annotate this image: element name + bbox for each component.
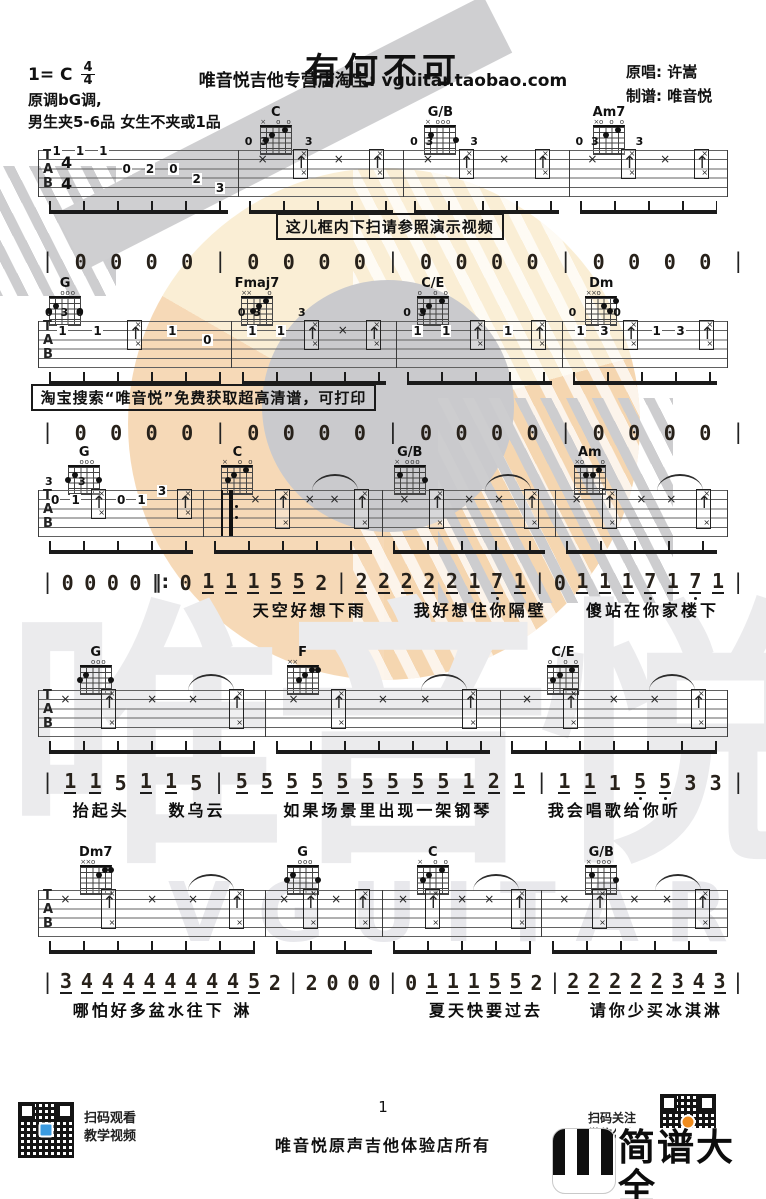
melody-barline: |	[735, 249, 742, 273]
melody-number: 7	[689, 570, 701, 594]
measure-row: ×↑××↑×↑×↑×↑××↑×↑××↑	[38, 890, 728, 937]
brand-logo: 简谱大全 jianpudq.com	[552, 1128, 766, 1199]
mute-cross: ×	[188, 693, 198, 705]
melody-number: 2	[423, 570, 435, 594]
melody-number: 0	[699, 251, 711, 273]
chord-dot	[589, 872, 595, 878]
strum-arrow-box: ↑	[127, 320, 142, 350]
melody-barline: |	[338, 570, 345, 594]
chord-dot	[263, 298, 269, 304]
melody-number: 1	[247, 570, 259, 594]
fret-note: 1	[51, 145, 61, 157]
strum-arrow-box: ↑	[470, 320, 485, 350]
strum-arrow-box: ↑	[354, 489, 369, 529]
melody-number: 5	[437, 770, 449, 794]
chord-dot	[83, 672, 89, 678]
melody-number: 5	[510, 970, 522, 994]
sheet-page: 唯音悦 VGUITAR 有何不可 1= C 4 4 唯音悦吉他专营店淘宝: vg…	[0, 0, 766, 1199]
shop-line: 唯音悦吉他专营店淘宝: vguitar.taobao.com	[110, 66, 656, 91]
chord-dot	[102, 867, 108, 873]
melody-number: 1	[622, 570, 634, 594]
melody-number: 2	[446, 570, 458, 594]
mute-cross: ×	[494, 493, 504, 505]
melody-number: 4	[143, 970, 155, 994]
measure: 0 013↑13↑	[563, 321, 728, 368]
chord-dot	[590, 472, 596, 478]
melody-number: 1	[468, 970, 480, 994]
mute-cross: ×	[305, 493, 315, 505]
strum-arrow-box: ↑	[331, 689, 346, 729]
chord-dot	[96, 872, 102, 878]
melody-barline: |	[735, 420, 742, 444]
melody-number: 5	[387, 770, 399, 794]
mute-cross: ×	[587, 153, 597, 165]
chord-C: C×oo	[215, 446, 259, 495]
melody-number: 3	[714, 970, 726, 994]
melody-number: 2	[269, 972, 281, 994]
melody-number: 1	[667, 570, 679, 594]
melody-number: 2	[378, 570, 390, 594]
fret-note: 3	[675, 325, 685, 337]
measure: 0 3 3×↑×↑	[570, 150, 728, 197]
mute-cross: ×	[572, 493, 582, 505]
mute-cross: ×	[338, 324, 348, 336]
chord-row: GoooFmaj7××oC/EoooDm××o	[0, 277, 766, 321]
lyric-text: 我会唱歌给你听	[548, 797, 681, 821]
lyric-text: 数乌云	[169, 797, 226, 821]
mute-cross: ×	[288, 693, 298, 705]
strum-arrow-box: ↑	[425, 889, 440, 929]
mute-cross: ×	[398, 893, 408, 905]
mute-cross: ×	[423, 153, 433, 165]
melody-number: 0	[420, 422, 432, 444]
strum-arrow-box: ↑	[459, 149, 474, 179]
fret-note: 1	[167, 325, 177, 337]
chord-dot	[596, 467, 602, 473]
melody-number: 0	[318, 422, 330, 444]
chord-dot	[583, 472, 589, 478]
fret-numbers: 0 3 3	[245, 135, 315, 148]
chord-dot	[284, 877, 290, 883]
system-4: GoooF××C/EoooTAB×↑××↑×↑××↑×↑××↑|115115|5…	[0, 646, 766, 821]
melody-number: 2	[630, 970, 642, 994]
strum-arrow-box: ↑	[602, 489, 617, 529]
melody-number: 1	[426, 970, 438, 994]
melody-number: 5	[293, 570, 305, 594]
chord-dot	[439, 298, 445, 304]
measure: ×↑××↑	[542, 890, 728, 937]
melody-number: 4	[693, 970, 705, 994]
melody-number: 5	[286, 770, 298, 794]
chord-C-E: C/Eooo	[541, 646, 585, 695]
melody-number: 0	[62, 572, 74, 594]
melody-number: 5	[489, 970, 501, 994]
melody-number: 1	[89, 770, 101, 794]
mute-cross: ×	[279, 893, 289, 905]
system-2: GoooFmaj7××oC/EoooDm××oTAB0 3 011↑100 3 …	[0, 277, 766, 444]
chord-dot	[225, 477, 231, 483]
melody-barline: |	[538, 770, 545, 794]
brand-text: 简谱大全 jianpudq.com	[616, 1128, 766, 1199]
mute-cross: ×	[378, 693, 388, 705]
melody-number: 0	[129, 572, 141, 594]
tab-staff: TAB0 3 011↑100 3 311↑×↑0 311↑1↑0 013↑13↑	[38, 321, 728, 368]
mute-cross: ×	[559, 893, 569, 905]
chord-dot	[613, 298, 619, 304]
lyrics-row: 哪怕好多盆水往下 淋夏天快要过去请你少买冰淇淋	[0, 997, 766, 1021]
melody-barline: |	[217, 249, 224, 273]
melody-number: 1	[558, 770, 570, 794]
mute-cross: ×	[329, 493, 339, 505]
melody-number: 1	[468, 570, 480, 594]
lyric-text: 抬起头	[73, 797, 130, 821]
strum-arrow-box: ↑	[275, 489, 290, 529]
melody-number: 0	[146, 422, 158, 444]
melody-number: 1	[513, 770, 525, 794]
strum-arrow-box: ↑	[535, 149, 550, 179]
fret-note: 0	[116, 494, 126, 506]
chord-dot	[290, 872, 296, 878]
mute-cross: ×	[662, 893, 672, 905]
chord-dot	[96, 477, 102, 483]
fret-numbers: 0 0	[569, 306, 623, 319]
melody-number: 0	[283, 422, 295, 444]
melody-number: 0	[181, 422, 193, 444]
melody-number: 0	[368, 972, 380, 994]
melody-number: 2	[651, 970, 663, 994]
strum-arrow-box: ↑	[366, 320, 381, 350]
melody-number: 0	[491, 251, 503, 273]
strum-arrow-box: ↑	[229, 689, 244, 729]
melody-number: 0	[146, 251, 158, 273]
fret-note: 0	[168, 163, 178, 175]
repeat-barline	[221, 490, 233, 536]
lyrics-row: 天空好想下雨我好想住你隔壁傻站在你家楼下	[0, 597, 766, 621]
melody-number: 2	[588, 970, 600, 994]
strum-arrow-box: ↑	[303, 889, 318, 929]
mute-cross: ×	[331, 893, 341, 905]
melody-number: 5	[270, 570, 282, 594]
measure: ×↑××↑	[39, 690, 266, 737]
melody-number: 0	[247, 251, 259, 273]
strum-arrow-box: ↑	[355, 889, 370, 929]
chord-dot	[309, 667, 315, 673]
melody-barline: |	[44, 249, 51, 273]
melody-number: 1	[609, 772, 621, 794]
strum-arrow-box: ↑	[293, 149, 308, 179]
melody-number: 1	[202, 570, 214, 594]
melody-number: 4	[164, 970, 176, 994]
fret-note: 1	[503, 325, 513, 337]
fret-note: 2	[145, 163, 155, 175]
melody-number: 0	[181, 251, 193, 273]
chord-dot	[108, 867, 114, 873]
original-singer: 原唱: 许嵩	[626, 60, 760, 84]
chord-dot	[422, 477, 428, 483]
fret-note: 1	[57, 325, 67, 337]
mute-cross: ×	[666, 493, 676, 505]
melody-number: 3	[684, 772, 696, 794]
melody-number: 5	[659, 770, 671, 794]
measure: ×↑××↑	[383, 490, 555, 537]
chord-dot	[439, 867, 445, 873]
chord-Dm7: Dm7××o	[74, 846, 118, 895]
mute-cross: ×	[258, 153, 268, 165]
qr-caption-follow-line1: 扫码关注	[588, 1110, 648, 1126]
fret-note: 1	[70, 494, 80, 506]
chord-dot	[615, 127, 621, 133]
brand-name: 简谱大全	[618, 1128, 766, 1199]
melody-number: 0	[347, 972, 359, 994]
melody-number: 0	[327, 972, 339, 994]
measure: 0 3 3×↑×↑	[239, 150, 404, 197]
measure: ×↑×↑	[266, 890, 383, 937]
tab-staff: TAB×↑××↑×↑××↑×↑××↑	[38, 690, 728, 737]
melody-barline: |	[389, 420, 396, 444]
melody-barline: |	[735, 570, 742, 594]
chord-dot	[231, 472, 237, 478]
melody-number: 2	[488, 770, 500, 794]
measure: 3 301↑013↑	[39, 490, 204, 537]
measure-row: 111020230 3 3×↑×↑0 3 3×↑×↑0 3 3×↑×↑	[38, 150, 728, 197]
melody-number: 5	[248, 970, 260, 994]
strum-arrow-box: ↑	[531, 320, 546, 350]
melody-number: 5	[634, 770, 646, 794]
callout-box: 淘宝搜索“唯音悦”免费获取超高清谱，可打印	[31, 384, 377, 411]
capo-note: 男生夹5-6品 女生不夹或1品	[28, 111, 221, 132]
melody-number: 2	[306, 972, 318, 994]
melody-number: 0	[491, 422, 503, 444]
melody-number: 0	[107, 572, 119, 594]
melody-number: 0	[405, 972, 417, 994]
melody-barline: |	[562, 420, 569, 444]
melody-number: 0	[699, 422, 711, 444]
measure-row: 0 3 011↑100 3 311↑×↑0 311↑1↑0 013↑13↑	[38, 321, 728, 368]
melody-number: 0	[554, 572, 566, 594]
time-signature-bottom: 4	[81, 75, 94, 87]
fret-note: 3	[599, 325, 609, 337]
melody-number: 0	[84, 572, 96, 594]
chord-dot	[420, 877, 426, 883]
lyric-text: 天空好想下雨	[253, 597, 367, 621]
tab-staff: TAB3 301↑013↑×↑××↑×↑××↑×↑××↑	[38, 490, 728, 537]
strum-arrow-box: ↑	[563, 689, 578, 729]
footer: 扫码观看 教学视频 1 唯音悦原声吉他体验店所有 扫码关注 微信公众号 简谱大全…	[0, 1088, 766, 1199]
melody-barline: |	[44, 570, 51, 594]
strum-arrow-box: ↑	[101, 689, 116, 729]
melody-number: 1	[225, 570, 237, 594]
melody-number: 1	[463, 770, 475, 794]
mute-cross: ×	[650, 693, 660, 705]
fret-note: 0	[202, 334, 212, 346]
mute-cross: ×	[60, 893, 70, 905]
strum-arrow-box: ↑	[696, 489, 711, 529]
lyric-text: 如果场景里出现一架钢琴	[283, 797, 492, 821]
chord-dot	[315, 877, 321, 883]
melody-number: 0	[110, 251, 122, 273]
mute-cross: ×	[399, 493, 409, 505]
fret-numbers: 3 3	[45, 475, 88, 488]
melody-number: 4	[102, 970, 114, 994]
measure: ×↑××↑	[39, 890, 266, 937]
melody-number: 1	[514, 570, 526, 594]
chord-G: Gooo	[281, 846, 325, 895]
melody-number: 5	[115, 772, 127, 794]
mute-cross: ×	[499, 153, 509, 165]
chord-G: Gooo	[74, 646, 118, 695]
melody-number: 1	[576, 570, 588, 594]
melody-barline: |	[734, 970, 741, 994]
strum-arrow-box: ↑	[621, 149, 636, 179]
measure: ×↑××↑	[501, 690, 728, 737]
melody-number: 0	[354, 422, 366, 444]
strum-arrow-box: ↑	[699, 320, 714, 350]
measure: 0 311↑1↑	[397, 321, 562, 368]
chord-G-B: G/B×ooo	[579, 846, 623, 895]
strum-arrow-box: ↑	[101, 889, 116, 929]
mute-cross: ×	[457, 893, 467, 905]
lyric-text: 傻站在你家楼下	[586, 597, 719, 621]
fret-note: 3	[215, 182, 225, 194]
fret-note: 1	[441, 325, 451, 337]
strum-arrow-box: ↑	[429, 489, 444, 529]
fret-note: 3	[157, 485, 167, 497]
melody-number: 0	[664, 422, 676, 444]
melody-number: 5	[337, 770, 349, 794]
chord-dot	[296, 677, 302, 683]
strum-arrow-box: ↑	[623, 320, 638, 350]
melody-number: 1	[712, 570, 724, 594]
fret-note: 1	[92, 325, 102, 337]
repeat-sign: ‖:	[152, 570, 169, 594]
melody-number: 5	[261, 770, 273, 794]
measure: 0 3 311↑×↑	[232, 321, 397, 368]
strum-arrow-box: ↑	[229, 889, 244, 929]
mute-cross: ×	[660, 153, 670, 165]
melody-barline: |	[536, 570, 543, 594]
time-signature-fraction: 4 4	[81, 62, 94, 87]
fret-numbers: 0 3 3	[576, 135, 646, 148]
chord-dot	[315, 667, 321, 673]
mute-cross: ×	[60, 693, 70, 705]
mute-cross: ×	[420, 693, 430, 705]
measure: 11102023	[39, 150, 239, 197]
fret-note: 1	[136, 494, 146, 506]
fret-numbers: 0 3 3	[410, 135, 480, 148]
melody-barline: |	[562, 249, 569, 273]
chord-dot	[302, 672, 308, 678]
melody-number: 4	[206, 970, 218, 994]
melody-number: 7	[644, 570, 656, 594]
chord-Am: Am×oo	[568, 446, 612, 495]
fret-note: 1	[247, 325, 257, 337]
strum-arrow-box: ↑	[511, 889, 526, 929]
melody-number: 0	[664, 251, 676, 273]
melody-number: 4	[227, 970, 239, 994]
lyrics-row: 抬起头数乌云如果场景里出现一架钢琴我会唱歌给你听	[0, 797, 766, 821]
melody-number: 3	[672, 970, 684, 994]
original-key-note: 原调bG调,	[28, 89, 102, 110]
credits: 原唱: 许嵩 制谱: 唯音悦	[626, 60, 760, 108]
fret-numbers: 0 3 0	[45, 306, 86, 319]
chord-dot	[550, 677, 556, 683]
melody-row: |0000‖:0111552|22222171|01117171|	[0, 567, 766, 594]
melody-number: 1	[447, 970, 459, 994]
melody-number: 0	[527, 251, 539, 273]
strum-arrow-box: ↑	[91, 489, 106, 519]
measure: ×↑××↑	[204, 490, 383, 537]
melody-number: 0	[527, 422, 539, 444]
mute-cross: ×	[147, 693, 157, 705]
chord-dot	[426, 872, 432, 878]
strum-arrow-box: ↑	[695, 889, 710, 929]
system-3: GoooC×ooG/B×oooAm×ooTAB3 301↑013↑×↑××↑×↑…	[0, 446, 766, 621]
fret-numbers: 0 3 3	[238, 306, 308, 319]
melody-number: 5	[190, 772, 202, 794]
fret-numbers: 0 3	[403, 306, 428, 319]
fret-note: 1	[652, 325, 662, 337]
melody-number: 0	[247, 422, 259, 444]
melody-number: 0	[628, 422, 640, 444]
melody-number: 0	[75, 251, 87, 273]
melody-number: 2	[567, 970, 579, 994]
chord-dot	[613, 877, 619, 883]
chord-F: F××	[281, 646, 325, 695]
mute-cross: ×	[609, 693, 619, 705]
melody-number: 0	[180, 572, 192, 594]
melody-number: 7	[491, 570, 503, 594]
strum-arrow-box: ↑	[304, 320, 319, 350]
melody-number: 3	[60, 970, 72, 994]
melody-number: 0	[593, 251, 605, 273]
melody-row: |0000|0000|0000|0000|	[0, 417, 766, 444]
mute-cross: ×	[334, 153, 344, 165]
piano-keys-icon	[552, 1128, 616, 1194]
mute-cross: ×	[188, 893, 198, 905]
melody-number: 0	[283, 251, 295, 273]
tab-systems: C×ooG/B×oooAm7×oooTAB44111020230 3 3×↑×↑…	[0, 0, 766, 1199]
melody-barline: |	[551, 970, 558, 994]
melody-number: 0	[628, 251, 640, 273]
melody-number: 5	[311, 770, 323, 794]
melody-number: 2	[401, 570, 413, 594]
key-label: 1= C	[28, 65, 72, 85]
melody-number: 1	[599, 570, 611, 594]
chord-G-B: G/B×ooo	[388, 446, 432, 495]
strum-arrow-box: ↑	[694, 149, 709, 179]
melody-number: 3	[710, 772, 722, 794]
system-5: Dm7××oGoooC×ooG/B×oooTAB×↑××↑×↑×↑×↑××↑×↑…	[0, 846, 766, 1021]
measure: ×↑××↑	[266, 690, 500, 737]
measure: 0 3 011↑10	[39, 321, 232, 368]
mute-cross: ×	[464, 493, 474, 505]
melody-number: 4	[81, 970, 93, 994]
chord-dot	[557, 672, 563, 678]
chord-dot	[77, 677, 83, 683]
strum-arrow-box: ↑	[592, 889, 607, 929]
fret-note: 1	[75, 145, 85, 157]
fret-note: 2	[192, 173, 202, 185]
melody-number: 0	[110, 422, 122, 444]
lyric-text: 我好想住你隔壁	[414, 597, 547, 621]
chord-dot	[282, 127, 288, 133]
strum-arrow-box: ↑	[462, 689, 477, 729]
lyric-text: 夏天快要过去	[429, 997, 543, 1021]
melody-number: 2	[315, 572, 327, 594]
chord-dot	[569, 667, 575, 673]
measure-row: 3 301↑013↑×↑××↑×↑××↑×↑××↑	[38, 490, 728, 537]
melody-barline: |	[290, 970, 297, 994]
